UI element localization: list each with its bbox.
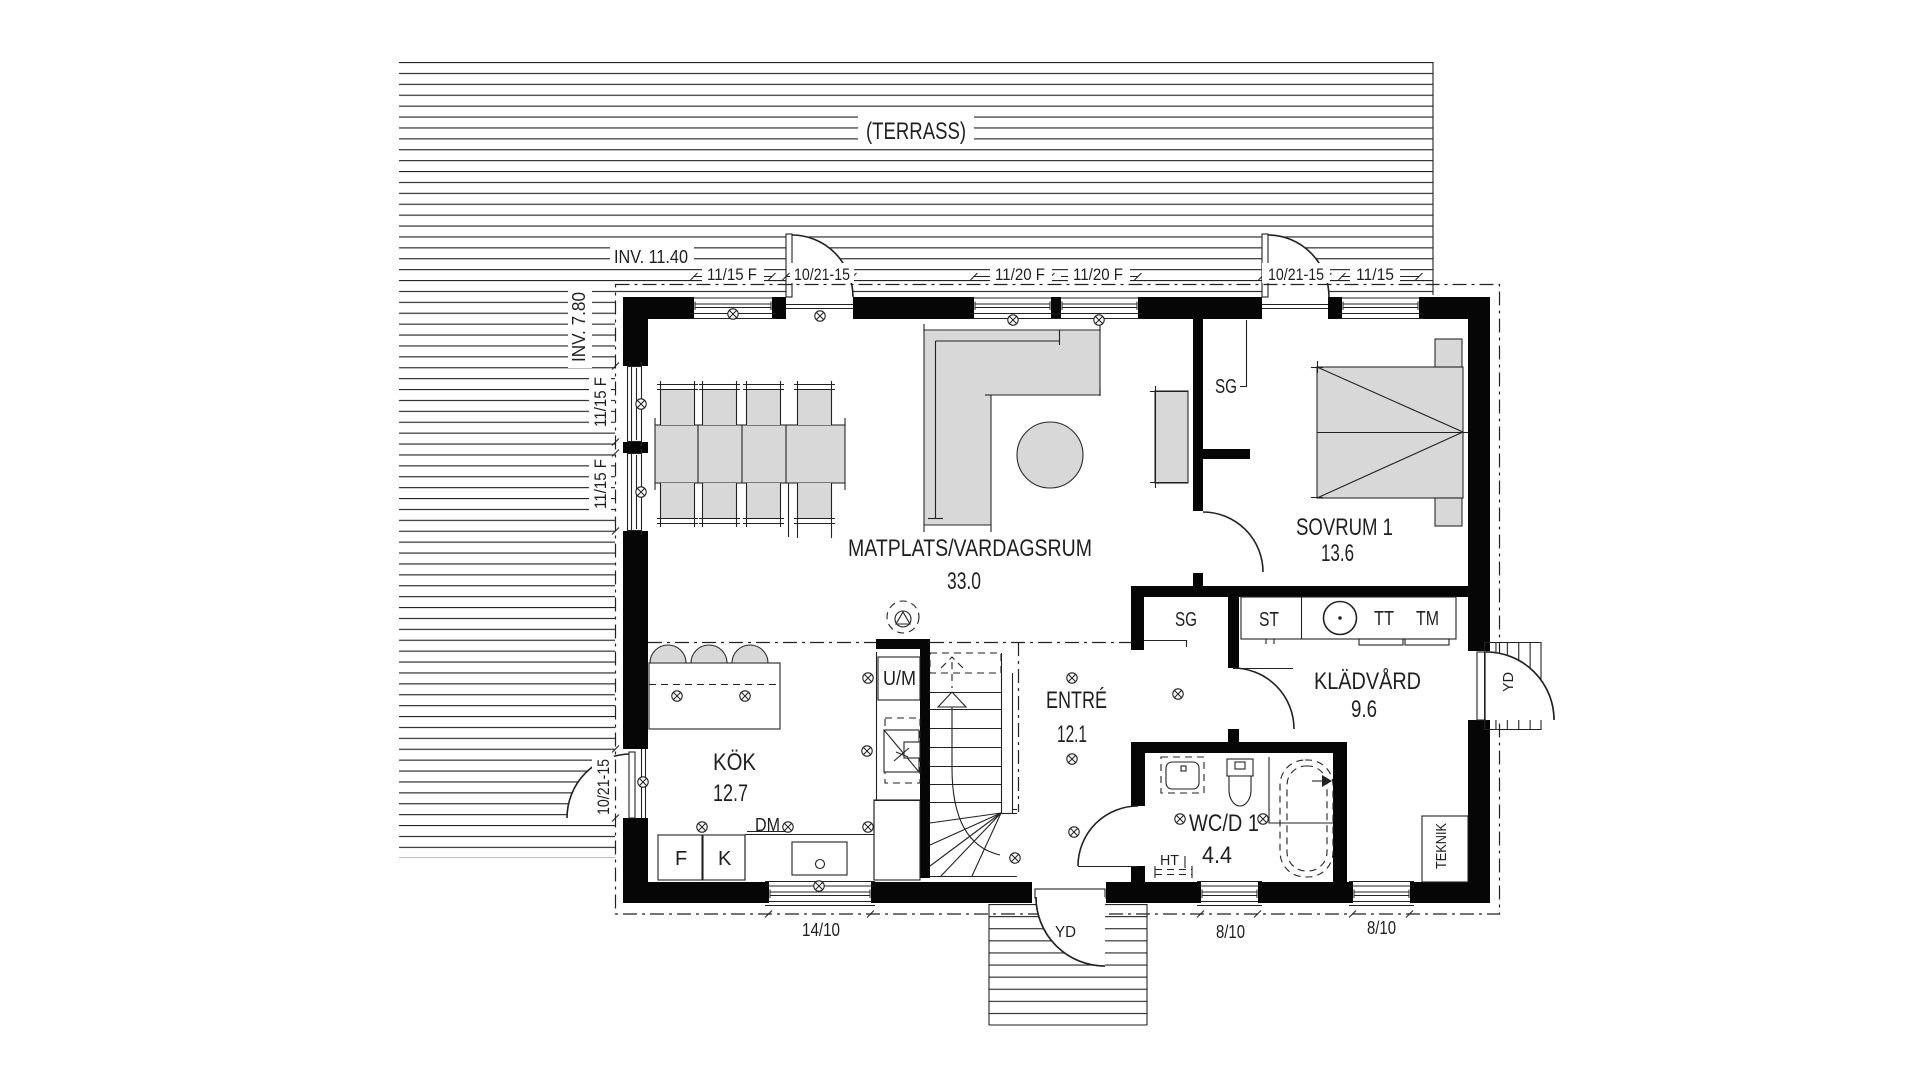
svg-text:4.4: 4.4 xyxy=(1202,842,1232,869)
svg-text:U/M: U/M xyxy=(883,668,916,690)
svg-text:ENTRÉ: ENTRÉ xyxy=(1046,687,1107,714)
svg-text:F: F xyxy=(675,848,687,870)
svg-text:10/21-15: 10/21-15 xyxy=(1268,265,1324,284)
svg-text:HT: HT xyxy=(1160,852,1179,869)
svg-text:SG: SG xyxy=(1175,609,1197,631)
svg-text:8/10: 8/10 xyxy=(1216,922,1245,942)
svg-text:TM: TM xyxy=(1416,608,1439,630)
svg-text:ST: ST xyxy=(1259,609,1279,631)
svg-text:TT: TT xyxy=(1374,608,1394,630)
svg-text:INV. 7.80: INV. 7.80 xyxy=(569,292,589,362)
svg-text:33.0: 33.0 xyxy=(947,568,981,595)
svg-text:11/20 F: 11/20 F xyxy=(995,265,1045,284)
svg-text:(TERRASS): (TERRASS) xyxy=(866,118,966,145)
svg-text:TEKNIK: TEKNIK xyxy=(1433,823,1450,869)
svg-text:SOVRUM 1: SOVRUM 1 xyxy=(1296,514,1393,541)
svg-text:KLÄDVÅRD: KLÄDVÅRD xyxy=(1314,667,1421,695)
svg-text:WC/D 1: WC/D 1 xyxy=(1189,810,1259,837)
svg-text:12.7: 12.7 xyxy=(713,780,748,807)
svg-text:K: K xyxy=(718,848,732,870)
svg-text:8/10: 8/10 xyxy=(1367,918,1396,938)
svg-text:SG: SG xyxy=(1215,376,1237,398)
svg-text:YD: YD xyxy=(1500,672,1517,692)
svg-text:11/15 F: 11/15 F xyxy=(591,377,610,427)
svg-text:INV. 11.40: INV. 11.40 xyxy=(614,247,688,267)
svg-text:11/15: 11/15 xyxy=(1356,265,1394,284)
svg-text:13.6: 13.6 xyxy=(1321,540,1354,567)
svg-text:DM: DM xyxy=(755,815,780,835)
svg-text:11/15 F: 11/15 F xyxy=(707,265,757,284)
svg-text:KÖK: KÖK xyxy=(713,749,756,776)
svg-text:11/20 F: 11/20 F xyxy=(1073,265,1123,284)
svg-text:10/21-15: 10/21-15 xyxy=(794,265,850,284)
svg-text:14/10: 14/10 xyxy=(802,920,840,940)
svg-text:YD: YD xyxy=(1055,924,1076,941)
svg-text:11/15 F: 11/15 F xyxy=(591,459,610,509)
svg-text:10/21-15: 10/21-15 xyxy=(594,759,613,815)
svg-text:MATPLATS/VARDAGSRUM: MATPLATS/VARDAGSRUM xyxy=(848,535,1092,562)
svg-text:9.6: 9.6 xyxy=(1351,696,1377,723)
svg-text:12.1: 12.1 xyxy=(1057,721,1087,748)
